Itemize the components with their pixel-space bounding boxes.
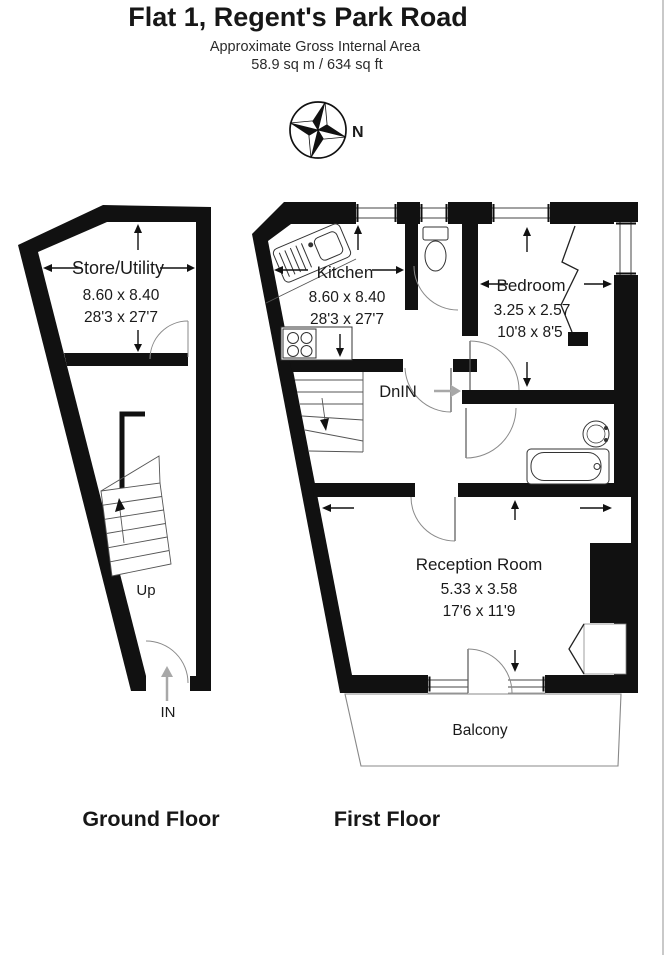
- bedroom-dims-ft: 10'8 x 8'5: [497, 324, 562, 341]
- reception-dims-ft: 17'6 x 11'9: [443, 603, 516, 620]
- bathroom-bottom-wall: [458, 483, 614, 497]
- reception-name: Reception Room: [416, 555, 543, 574]
- landing-wall-stub: [453, 359, 477, 372]
- ground-floor-plan: Store/Utility 8.60 x 8.40 28'3 x 27'7 Up…: [18, 205, 211, 721]
- bathtub-icon: [527, 449, 609, 484]
- bedroom-dims-m: 3.25 x 2.57: [494, 302, 571, 319]
- compass-rose-icon: N: [283, 95, 364, 165]
- reception-top-wall: [311, 483, 415, 497]
- window: [614, 222, 638, 275]
- store-utility-dims-ft: 28'3 x 27'7: [84, 309, 158, 326]
- balcony-label: Balcony: [452, 722, 507, 739]
- bedroom-left-wall: [462, 224, 478, 336]
- window: [492, 202, 550, 224]
- store-utility-name: Store/Utility: [72, 258, 164, 278]
- balcony-door-gap: [468, 674, 508, 694]
- first-floor-plan: Kitchen 8.60 x 8.40 28'3 x 27'7 Bedroom …: [252, 202, 638, 766]
- bedroom-name: Bedroom: [497, 276, 566, 295]
- chimney-breast: [590, 543, 614, 623]
- window: [420, 202, 448, 224]
- alcove: [584, 624, 626, 674]
- page-edge-line: [662, 0, 664, 955]
- first-floor-caption: First Floor: [334, 807, 440, 832]
- wc-left-wall: [405, 224, 418, 310]
- stairs-dnin-label: DnIN: [379, 383, 417, 401]
- stairs-up-label: Up: [136, 582, 155, 599]
- window: [356, 202, 397, 224]
- entrance-in-label: IN: [161, 704, 176, 721]
- closet-wall-stub: [568, 332, 588, 346]
- compass-north-label: N: [352, 124, 364, 141]
- wall-recess: [614, 497, 631, 543]
- store-utility-dims-m: 8.60 x 8.40: [83, 287, 160, 304]
- kitchen-name: Kitchen: [317, 263, 374, 282]
- basin-icon: [583, 421, 609, 447]
- kitchen-dims-m: 8.60 x 8.40: [309, 289, 386, 306]
- kitchen-hob-icon: [281, 327, 352, 360]
- ground-floor-caption: Ground Floor: [82, 807, 219, 832]
- toilet-icon: [423, 227, 448, 271]
- kitchen-bottom-wall: [289, 359, 403, 372]
- kitchen-dims-ft: 28'3 x 27'7: [310, 311, 384, 328]
- bedroom-bottom-wall: [462, 390, 614, 404]
- floorplan-page: Flat 1, Regent's Park Road Approximate G…: [0, 0, 670, 955]
- reception-dims-m: 5.33 x 3.58: [441, 581, 518, 598]
- ground-divider-wall: [64, 353, 188, 366]
